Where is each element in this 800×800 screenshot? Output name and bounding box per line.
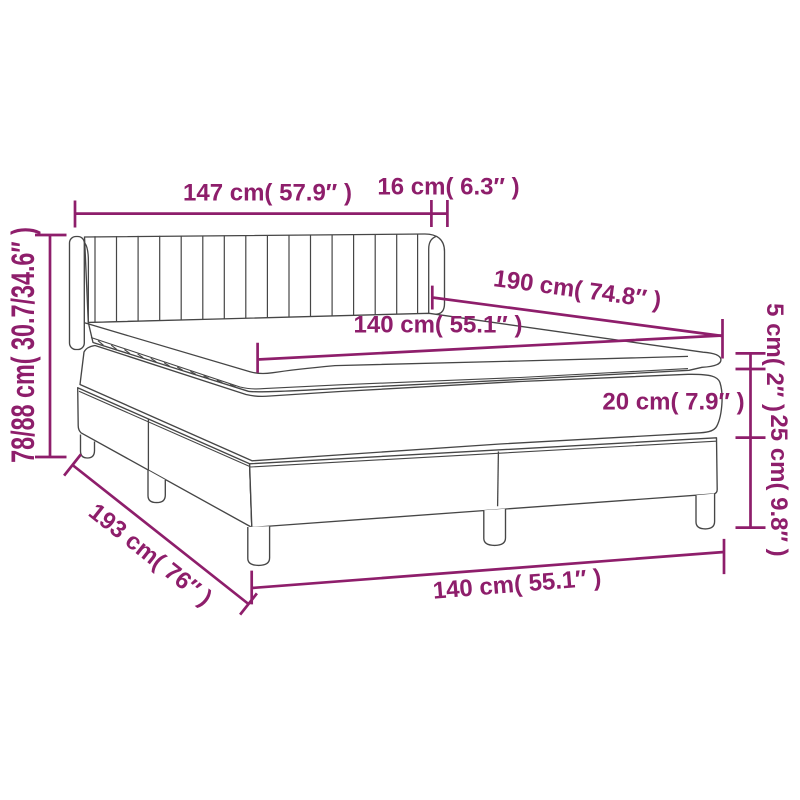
- svg-text:16 cm( 6.3″ ): 16 cm( 6.3″ ): [377, 174, 519, 201]
- svg-text:25 cm( 9.8″ ): 25 cm( 9.8″ ): [765, 414, 792, 556]
- svg-text:5 cm( 2″ ): 5 cm( 2″ ): [761, 303, 788, 412]
- svg-text:78/88 cm( 30.7/34.6″ ): 78/88 cm( 30.7/34.6″ ): [6, 227, 41, 463]
- svg-text:193 cm( 76″ ): 193 cm( 76″ ): [83, 498, 217, 611]
- svg-text:140 cm( 55.1″ ): 140 cm( 55.1″ ): [432, 564, 603, 604]
- svg-text:20 cm( 7.9″ ): 20 cm( 7.9″ ): [602, 389, 744, 416]
- svg-text:140 cm( 55.1″ ): 140 cm( 55.1″ ): [354, 312, 523, 339]
- svg-text:147 cm( 57.9″ ): 147 cm( 57.9″ ): [183, 180, 352, 207]
- svg-text:190 cm( 74.8″ ): 190 cm( 74.8″ ): [492, 265, 663, 314]
